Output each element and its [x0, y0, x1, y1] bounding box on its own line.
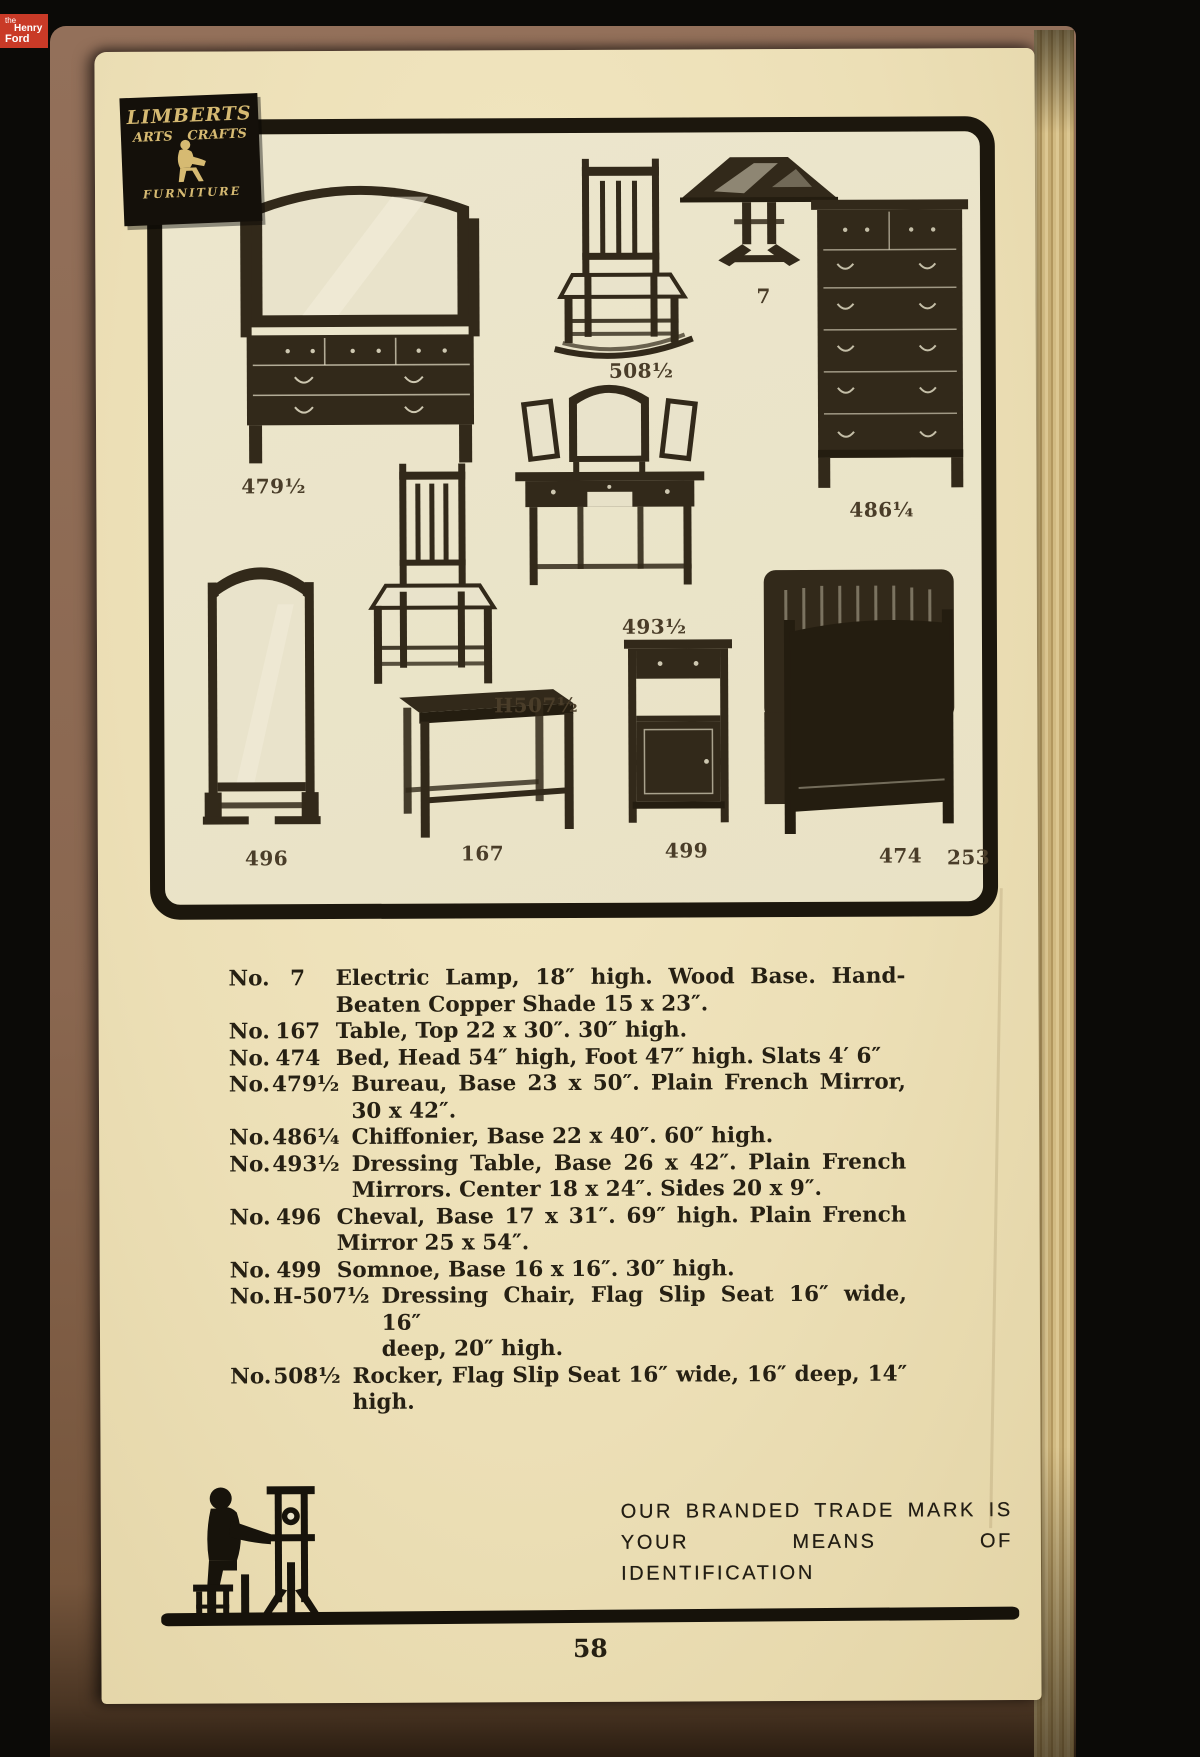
listing-description: Rocker, Flag Slip Seat 16″ wide, 16″ dee… [353, 1361, 908, 1416]
chiffonier-illustration [807, 191, 973, 492]
listing-no: No. [228, 966, 269, 993]
listing-description: Cheval, Base 17 x 31″. 69″ high. Plain F… [337, 1202, 907, 1257]
cheval-mirror-illustration [202, 534, 321, 840]
item-number-label: 167 [461, 841, 504, 865]
page-number: 58 [161, 1632, 1019, 1665]
logo-line-arts: ARTS [133, 129, 173, 146]
item-number-label: 496 [245, 846, 288, 870]
listing-number: 479½ [272, 1072, 339, 1099]
listing-description: Dressing Table, Base 26 x 42″. Plain Fre… [352, 1149, 907, 1204]
item-number-label: 479½ [241, 474, 306, 498]
listing-description: Table, Top 22 x 30″. 30″ high. [336, 1017, 906, 1046]
listing-number: 496 [273, 1205, 325, 1232]
listing-number: H-507½ [273, 1284, 370, 1311]
item-number-label: 7 [756, 284, 771, 308]
craftsman-figure-icon [169, 137, 213, 189]
listing-number: 474 [272, 1046, 324, 1073]
listing-no: No. [229, 1019, 270, 1046]
listing-number: 493½ [272, 1151, 339, 1178]
craftsman-vignette [179, 1476, 375, 1617]
listing-description: Chiffonier, Base 22 x 40″. 60″ high. [352, 1123, 907, 1152]
listing-number: 486¼ [272, 1125, 339, 1152]
somnoe-illustration [618, 633, 739, 844]
listing-description: Dressing Chair, Flag Slip Seat 16″ wide,… [381, 1282, 907, 1364]
listing-no: No. [230, 1284, 271, 1311]
trademark-tagline: OUR BRANDED TRADE MARK IS YOUR MEANS OF … [621, 1495, 1013, 1590]
listing-number: 508½ [273, 1363, 340, 1390]
henry-ford-logo: the Henry Ford [0, 14, 48, 48]
listing-row-479: No. 479½ Bureau, Base 23 x 50″. Plain Fr… [229, 1070, 906, 1126]
listing-no: No. [230, 1364, 271, 1391]
listing-no: No. [229, 1125, 270, 1152]
tagline-line-1: OUR BRANDED TRADE MARK IS [621, 1495, 1013, 1528]
listing-row-493: No. 493½ Dressing Table, Base 26 x 42″. … [229, 1149, 906, 1205]
bureau-illustration [232, 148, 488, 469]
listing-row-474: No. 474 Bed, Head 54″ high, Foot 47″ hig… [229, 1043, 906, 1072]
listing-no: No. [230, 1258, 271, 1285]
dressing-table-illustration [507, 363, 713, 599]
item-number-label: 499 [665, 838, 708, 862]
tagline-line-2: YOUR MEANS OF IDENTIFICATION [621, 1526, 1013, 1590]
listing-description: Bureau, Base 23 x 50″. Plain French Mirr… [351, 1070, 906, 1125]
catalog-page: 479½ 508½ 7 486¼ 496 H507½ 493½ 167 499 … [94, 48, 1041, 1704]
listing-row-486: No. 486¼ Chiffonier, Base 22 x 40″. 60″ … [229, 1123, 906, 1152]
dressing-chair-illustration [357, 459, 508, 690]
listing-row-7: No. 7 Electric Lamp, 18″ high. Wood Base… [228, 964, 905, 1020]
bed-illustration [760, 561, 976, 842]
listing-no: No. [229, 1072, 270, 1099]
listing-row-499: No. 499 Somnoe, Base 16 x 16″. 30″ high. [230, 1255, 907, 1284]
henry-ford-logo-ford: Ford [5, 34, 48, 45]
listing-row-h507: No. H-507½ Dressing Chair, Flag Slip Sea… [230, 1282, 907, 1364]
logo-line-limberts: LIMBERTS [120, 102, 259, 129]
listing-number: 167 [272, 1019, 324, 1046]
listing-description: Bed, Head 54″ high, Foot 47″ high. Slats… [336, 1043, 906, 1072]
listing-number: 7 [272, 966, 324, 993]
listing-no: No. [229, 1152, 270, 1179]
item-number-label: 493½ [622, 614, 687, 638]
lumberts-trademark-logo: LIMBERTS ARTS CRAFTS FURNITURE [119, 93, 262, 226]
item-number-label: 474 [879, 843, 922, 867]
listing-row-167: No. 167 Table, Top 22 x 30″. 30″ high. [229, 1017, 906, 1046]
paper-crease [989, 888, 1003, 1528]
listing-row-496: No. 496 Cheval, Base 17 x 31″. 69″ high.… [229, 1202, 906, 1258]
listing-number: 499 [273, 1258, 325, 1285]
item-number-label: 508½ [609, 359, 674, 383]
catalog-listings: No. 7 Electric Lamp, 18″ high. Wood Base… [228, 964, 907, 1417]
item-number-label: 253 [947, 845, 990, 869]
listing-no: No. [229, 1046, 270, 1073]
listing-no: No. [229, 1205, 270, 1232]
item-number-label: 486¼ [849, 497, 914, 521]
listing-description: Somnoe, Base 16 x 16″. 30″ high. [337, 1255, 907, 1284]
illustration-plate: 479½ 508½ 7 486¼ 496 H507½ 493½ 167 499 … [147, 116, 998, 920]
item-number-label: H507½ [494, 693, 578, 717]
listing-row-508: No. 508½ Rocker, Flag Slip Seat 16″ wide… [230, 1361, 907, 1417]
listing-description: Electric Lamp, 18″ high. Wood Base. Hand… [335, 964, 905, 1019]
